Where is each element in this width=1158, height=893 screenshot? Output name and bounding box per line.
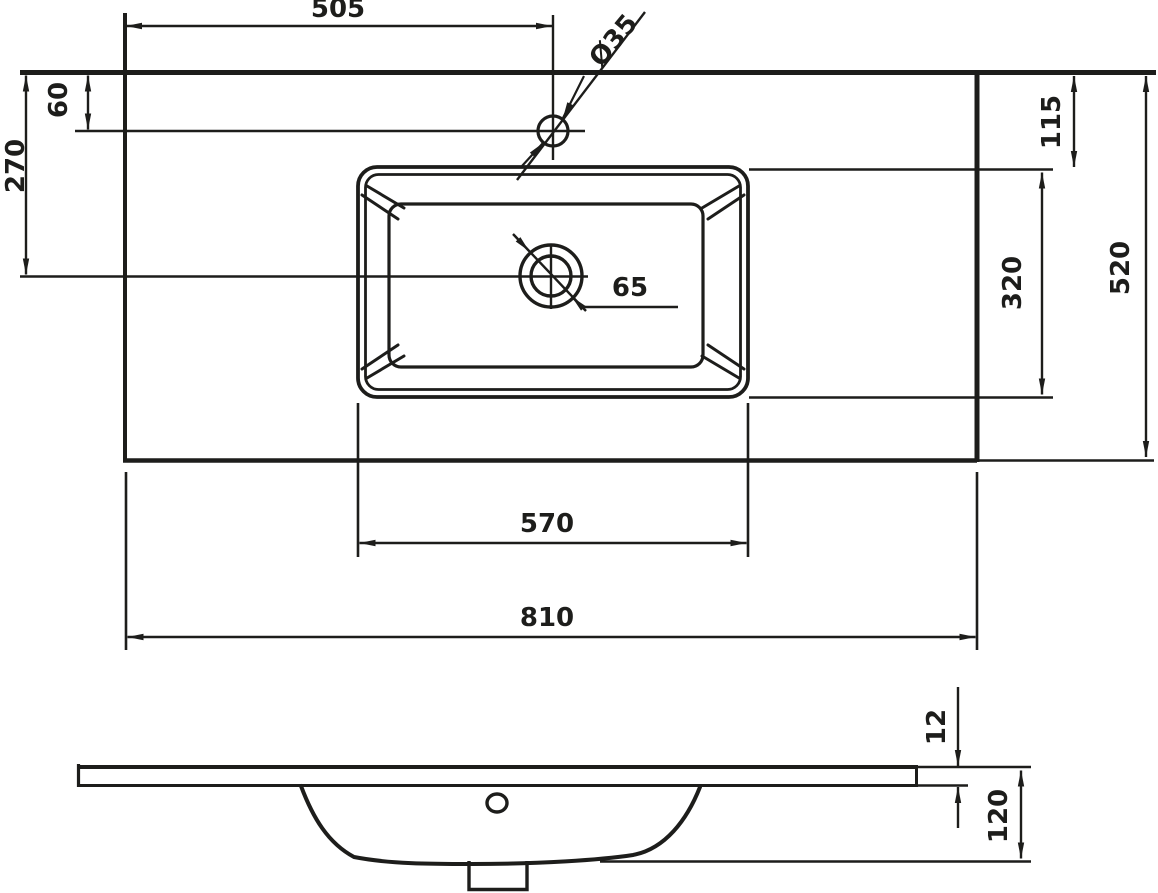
dim-570: 570 xyxy=(358,403,748,557)
dim-65-label: 65 xyxy=(612,273,648,303)
dim-12-label: 12 xyxy=(922,709,952,745)
top-view: 505 Ø35 60 270 65 xyxy=(1,0,1156,650)
basin-corner-chamfers xyxy=(362,186,744,378)
dim-270-label: 270 xyxy=(1,139,31,193)
basin-bowl-edge xyxy=(389,204,703,367)
dim-115-label: 115 xyxy=(1037,95,1067,149)
faucet-hole xyxy=(75,15,585,160)
dim-270: 270 xyxy=(1,76,31,275)
dim-65-arrow-upper xyxy=(514,235,529,251)
dim-65-arrow-lower xyxy=(572,297,585,310)
dim-320-label: 320 xyxy=(998,256,1028,310)
slab-profile xyxy=(77,764,1031,787)
counter-outline xyxy=(20,13,1156,462)
basin xyxy=(358,167,748,397)
faucet-diameter-arrow-lower xyxy=(522,143,543,166)
dim-810-label: 810 xyxy=(520,603,574,633)
drain-hole xyxy=(20,244,588,309)
dim-520: 520 xyxy=(1106,76,1146,457)
dim-60-label: 60 xyxy=(44,82,74,118)
basin-rim-outer xyxy=(358,167,748,397)
dim-120-label: 120 xyxy=(984,789,1014,843)
dim-120: 120 xyxy=(984,771,1021,859)
dim-12: 12 xyxy=(922,687,958,828)
dim-505: 505 xyxy=(126,0,552,26)
dim-810: 810 xyxy=(126,472,977,650)
dim-570-label: 570 xyxy=(520,509,574,539)
dim-115: 115 xyxy=(1037,76,1074,167)
dim-520-label: 520 xyxy=(1106,241,1136,295)
dim-65: 65 xyxy=(513,234,678,311)
front-view: 12 120 xyxy=(77,687,1031,890)
dim-60: 60 xyxy=(44,76,88,130)
dim-505-label: 505 xyxy=(311,0,365,24)
bowl-profile xyxy=(301,786,700,864)
basin-rim-inner xyxy=(366,175,741,390)
dim-320: 320 xyxy=(998,173,1042,395)
dim-faucet-diameter: Ø35 xyxy=(517,9,645,180)
overflow-hole xyxy=(487,794,507,812)
washbasin-technical-drawing: 505 Ø35 60 270 65 xyxy=(0,0,1158,893)
dim-faucet-diameter-label: Ø35 xyxy=(584,9,644,73)
drawing-sheet: 505 Ø35 60 270 65 xyxy=(0,0,1158,893)
